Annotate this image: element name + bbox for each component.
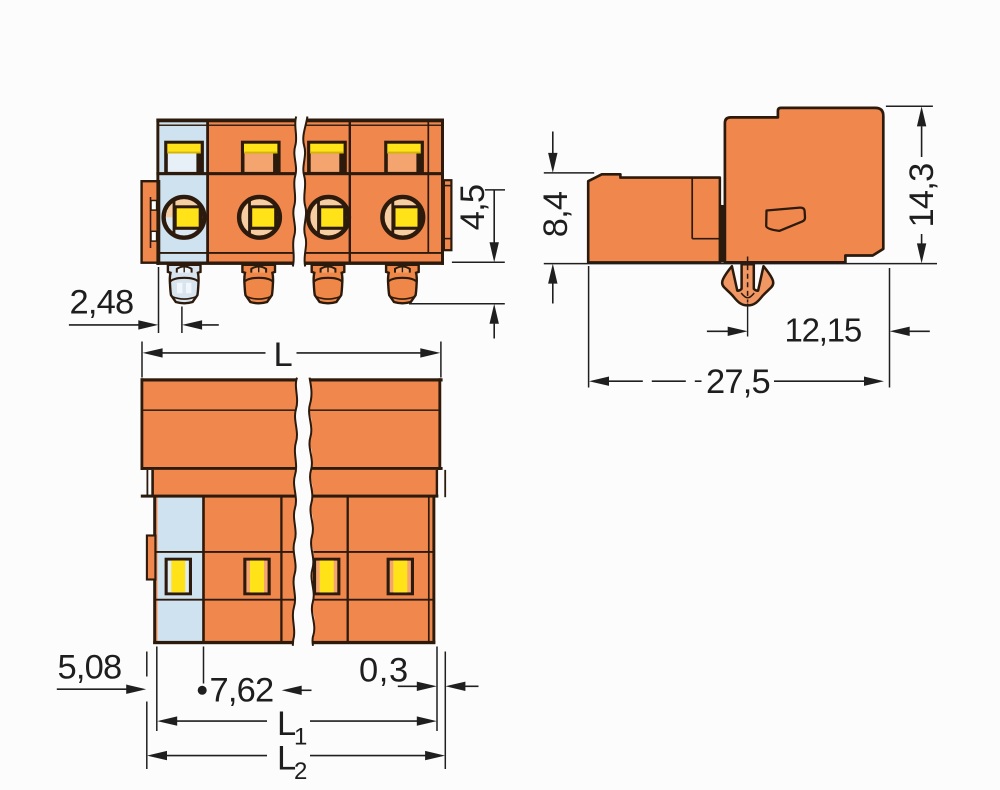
svg-text:2: 2 xyxy=(294,758,307,785)
svg-text:5,08: 5,08 xyxy=(58,648,122,686)
svg-text:7,62: 7,62 xyxy=(210,672,274,710)
svg-text:1: 1 xyxy=(294,724,307,751)
svg-text:L: L xyxy=(274,336,293,374)
svg-text:2,48: 2,48 xyxy=(70,284,134,322)
svg-text:14,3: 14,3 xyxy=(903,164,941,228)
svg-text:27,5: 27,5 xyxy=(706,363,770,401)
svg-text:12,15: 12,15 xyxy=(785,312,862,349)
svg-text:4,5: 4,5 xyxy=(454,185,492,231)
svg-text:8,4: 8,4 xyxy=(537,191,575,237)
svg-text:0,3: 0,3 xyxy=(359,651,409,689)
